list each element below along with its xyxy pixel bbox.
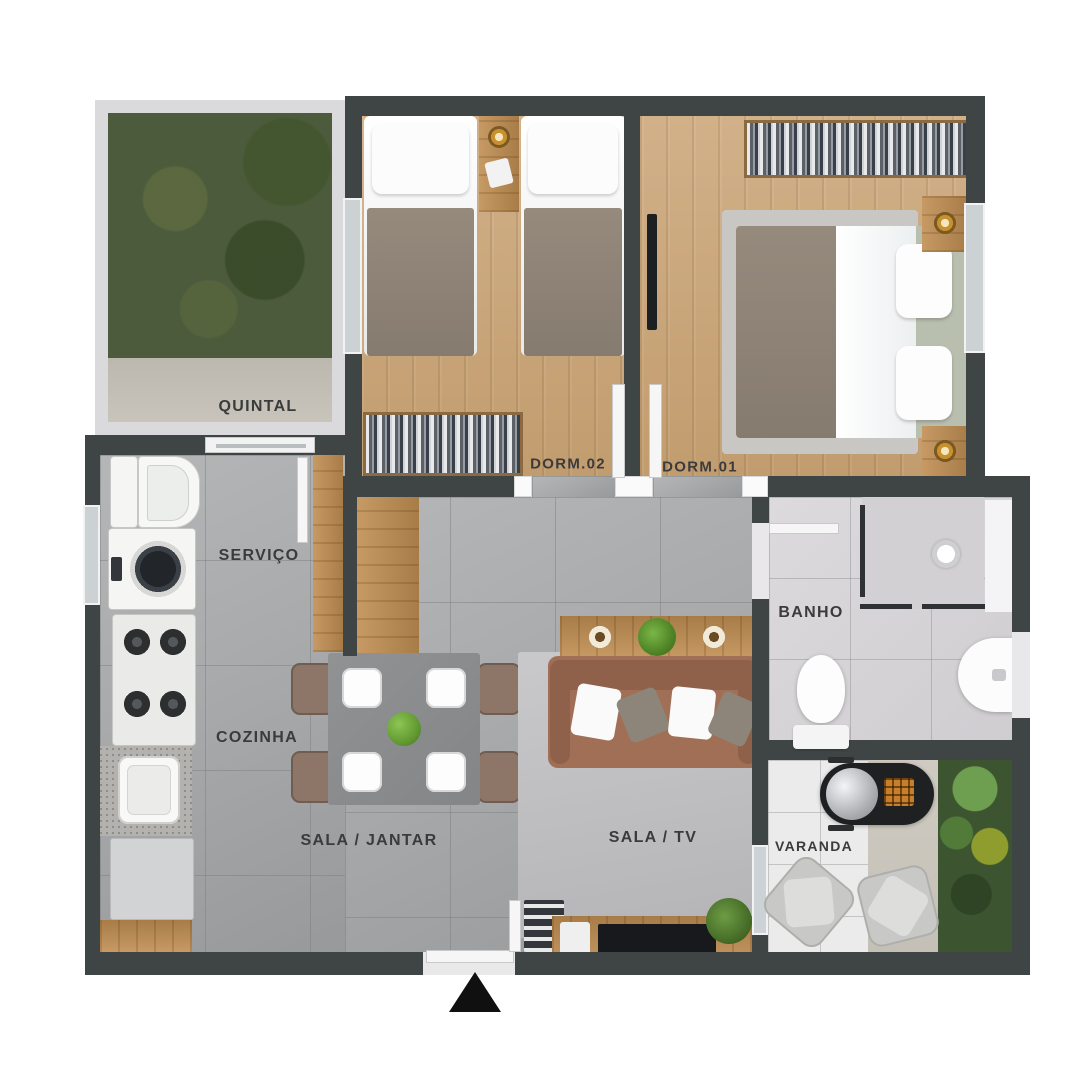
washing-machine — [108, 528, 196, 610]
shower-glass-horizontal — [860, 604, 912, 609]
single-bed-left — [364, 116, 477, 356]
toilet-tank — [793, 725, 849, 749]
dorm02-door-leaf — [612, 384, 625, 478]
shower-glass-vertical — [860, 505, 865, 597]
room-quintal — [95, 100, 345, 435]
wardrobe-dorm02 — [363, 412, 523, 476]
wall-peninsula — [343, 476, 357, 656]
decor-bowl-icon — [588, 625, 612, 649]
sofa-pillow-white — [570, 683, 622, 742]
servico-door-leaf — [297, 457, 308, 543]
cabinet-servico — [110, 456, 138, 528]
banho-doorway — [752, 523, 769, 599]
grass-lawn — [108, 113, 332, 358]
burner-icon — [122, 689, 152, 719]
bbq-grill — [820, 763, 934, 825]
room-label-varanda: VARANDA — [775, 838, 853, 854]
console-table — [560, 616, 754, 658]
washer-drum-icon — [129, 540, 187, 598]
table-lamp-icon — [933, 211, 957, 235]
pillow — [528, 124, 618, 194]
room-label-cozinha: COZINHA — [216, 729, 298, 747]
plate — [342, 668, 382, 708]
floor-plan: QUINTAL DORM.02 DORM.01 SERVIÇO COZINHA … — [0, 0, 1080, 1080]
dorm01-door-leaf — [649, 384, 662, 478]
shower-niche — [985, 500, 1012, 612]
kitchen-sink — [118, 756, 180, 824]
nightstand-dorm02 — [479, 116, 519, 212]
plate — [426, 752, 466, 792]
table-centerpiece-plant — [387, 712, 421, 746]
open-door-leaf-sala — [509, 900, 521, 952]
bed-blanket — [736, 226, 836, 438]
window-servico — [83, 505, 100, 605]
room-label-servico: SERVIÇO — [219, 547, 300, 565]
nightstand-dorm01-bottom — [922, 426, 968, 478]
door-jamb — [615, 476, 653, 497]
pillow — [896, 346, 952, 420]
clothes-rack-dorm01 — [744, 120, 970, 178]
tall-cabinet-servico — [313, 455, 343, 652]
wall-banho-left — [752, 476, 769, 760]
tub-basin — [147, 465, 189, 521]
burner-icon — [122, 627, 152, 657]
grill-handle — [828, 825, 854, 831]
refrigerator — [110, 838, 194, 920]
decor-book — [484, 157, 514, 188]
shower-head-icon — [932, 540, 960, 568]
bed-blanket — [367, 208, 474, 356]
bed-blanket — [524, 208, 622, 356]
peninsula-cabinet — [357, 490, 419, 656]
grill-lid-icon — [826, 768, 878, 820]
single-bed-right — [521, 116, 626, 356]
cabinet-below-fridge — [100, 920, 192, 952]
room-label-quintal: QUINTAL — [218, 398, 297, 416]
sink-basin — [127, 765, 171, 815]
wall-varanda-bottom — [752, 952, 1030, 975]
wall-top — [345, 96, 985, 116]
pillow — [896, 244, 952, 318]
burner-icon — [158, 627, 188, 657]
varanda-glass-door — [752, 845, 768, 935]
laundry-tub — [138, 456, 200, 528]
nightstand-dorm01-top — [922, 196, 968, 252]
shower-area — [862, 497, 984, 609]
plate — [426, 668, 466, 708]
table-lamp-icon — [488, 126, 510, 148]
room-label-sala-jantar: SALA / JANTAR — [301, 832, 438, 850]
room-label-banho: BANHO — [778, 604, 843, 622]
toilet-bowl — [797, 655, 845, 723]
grill-handle — [828, 757, 854, 763]
entrance-arrow-icon — [449, 972, 501, 1012]
varanda-garden-strip — [938, 760, 1012, 952]
table-lamp-icon — [933, 439, 957, 463]
doorway-dorm01 — [653, 476, 742, 497]
entrance-door-leaf — [426, 950, 514, 963]
wall-dorm-divider — [624, 112, 640, 478]
wall-right-outer — [1012, 476, 1030, 975]
faucet-icon — [992, 669, 1006, 681]
decor-bowl-icon — [702, 625, 726, 649]
dining-chair — [477, 751, 521, 803]
quintal-sliding-door — [205, 437, 315, 453]
banho-door-leaf — [769, 523, 839, 534]
window-dorm01 — [964, 203, 985, 353]
pillow — [372, 124, 469, 194]
plate — [342, 752, 382, 792]
door-jamb — [514, 476, 532, 497]
stove — [112, 614, 196, 746]
toilet — [793, 655, 849, 753]
room-label-dorm02: DORM.02 — [530, 456, 606, 473]
washer-detergent-tray — [111, 557, 122, 581]
room-label-dorm01: DORM.01 — [662, 459, 738, 476]
door-jamb — [742, 476, 768, 497]
potted-plant-sala — [706, 898, 752, 944]
burner-icon — [158, 689, 188, 719]
dining-chair — [477, 663, 521, 715]
doorway-dorm02 — [532, 476, 615, 497]
sliding-door-glass — [216, 444, 306, 448]
banho-sink-counter — [1012, 632, 1030, 718]
dining-table — [328, 653, 480, 805]
room-label-sala-tv: SALA / TV — [609, 829, 697, 847]
sofa — [548, 656, 760, 768]
grill-coals-icon — [884, 778, 914, 806]
sofa-pillow-gray — [615, 686, 671, 744]
shower-glass-horizontal — [922, 604, 986, 609]
double-bed — [736, 226, 966, 438]
console-plant — [638, 618, 676, 656]
window-dorm02 — [343, 198, 362, 354]
sofa-arm — [550, 660, 570, 764]
wall-tv-dorm01 — [647, 214, 657, 330]
